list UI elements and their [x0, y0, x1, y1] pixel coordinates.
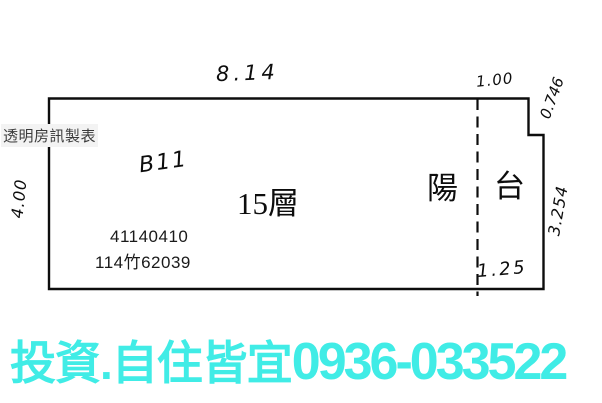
footer-ad-text: 投資.自住皆宜 — [10, 337, 292, 389]
dimension-balcony-bottom-width: 1.25 — [476, 257, 528, 282]
balcony-label-right-char: 台 — [494, 161, 525, 206]
dimension-top-width: 8.14 — [216, 60, 280, 86]
watermark-label: 透明房訊製表 — [1, 124, 98, 147]
registration-number-1: 41140410 — [110, 227, 188, 247]
floorplan-page: 透明房訊製表 8.14 1.00 0.746 4.00 3.254 1.25 B… — [0, 0, 602, 403]
balcony-label-left-char: 陽 — [427, 163, 458, 208]
footer-phone-number: 0936-033522 — [292, 333, 566, 391]
footer-ad-line: 投資.自住皆宜0936-033522 — [10, 334, 565, 391]
registration-number-2: 114竹62039 — [95, 248, 191, 273]
floor-label: 15層 — [237, 178, 299, 223]
